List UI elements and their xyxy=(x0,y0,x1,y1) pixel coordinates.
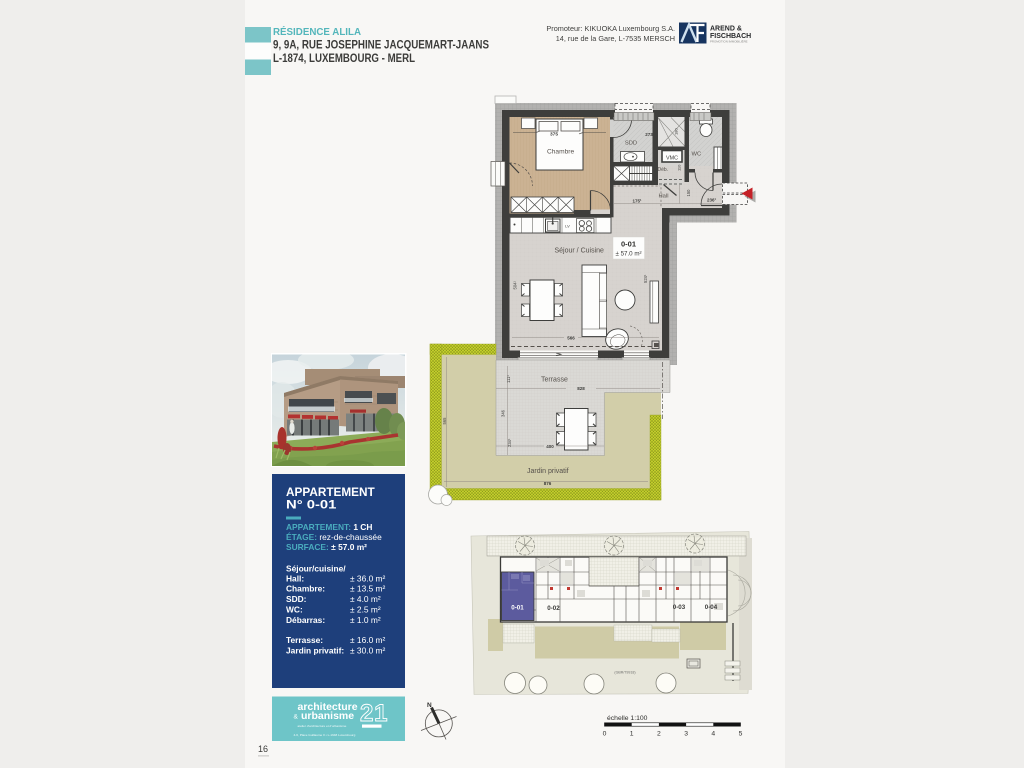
svg-text:16: 16 xyxy=(258,744,268,754)
svg-text:ÉTAGE: rez-de-chaussée: ÉTAGE: rez-de-chaussée xyxy=(286,531,382,542)
svg-text:± 57.0 m²: ± 57.0 m² xyxy=(615,251,641,258)
svg-text:21: 21 xyxy=(360,700,388,727)
svg-text:4: 4 xyxy=(711,731,715,738)
svg-text:atelier d'architecture et d'ur: atelier d'architecture et d'urbanisme xyxy=(298,724,347,728)
svg-text:WC: WC xyxy=(692,152,702,158)
svg-text:110: 110 xyxy=(677,164,682,171)
svg-text:SDD:: SDD: xyxy=(286,594,306,604)
svg-text:L-1874, LUXEMBOURG - MERL: L-1874, LUXEMBOURG - MERL xyxy=(273,53,415,65)
svg-text:Débarras:: Débarras: xyxy=(286,615,325,625)
svg-text:Jardin privatif:: Jardin privatif: xyxy=(286,646,344,656)
svg-text:(GBR/79918): (GBR/79918) xyxy=(614,671,635,675)
svg-text:234¹: 234¹ xyxy=(507,438,512,447)
svg-text:180: 180 xyxy=(674,128,679,135)
svg-text:± 36.0 m²: ± 36.0 m² xyxy=(350,574,386,584)
svg-text:Chambre: Chambre xyxy=(547,149,574,156)
svg-text:0-01: 0-01 xyxy=(621,240,636,249)
svg-text:VMC: VMC xyxy=(666,156,678,162)
svg-text:SDD: SDD xyxy=(625,141,637,147)
svg-text:RÉSIDENCE ALILA: RÉSIDENCE ALILA xyxy=(273,25,361,38)
svg-text:± 2.5 m²: ± 2.5 m² xyxy=(350,605,381,615)
svg-text:Jardin privatif: Jardin privatif xyxy=(527,468,569,475)
svg-text:Terrasse: Terrasse xyxy=(541,377,568,384)
svg-text:3: 3 xyxy=(684,731,688,738)
svg-text:Séjour/cuisine/: Séjour/cuisine/ xyxy=(286,564,346,574)
svg-text:566: 566 xyxy=(567,336,575,341)
svg-text:± 4.0 m²: ± 4.0 m² xyxy=(350,594,381,604)
svg-text:0: 0 xyxy=(603,731,607,738)
svg-text:565: 565 xyxy=(442,417,447,425)
svg-text:0-01: 0-01 xyxy=(511,605,524,612)
svg-text:WC:: WC: xyxy=(286,605,303,615)
svg-text:0-03: 0-03 xyxy=(673,604,686,611)
svg-text:SURFACE: ± 57.0 m²: SURFACE: ± 57.0 m² xyxy=(286,542,367,552)
svg-text:4-6, Place Guillaume II • L-: 4-6, Place Guillaume II • L-1648 Luxembo… xyxy=(294,733,356,737)
svg-text:828: 828 xyxy=(577,386,585,391)
svg-text:Chambre:: Chambre: xyxy=(286,584,325,594)
svg-text:175¹: 175¹ xyxy=(632,199,642,204)
svg-text:524¹: 524¹ xyxy=(643,274,648,283)
svg-text:2: 2 xyxy=(657,731,661,738)
svg-text:N: N xyxy=(427,702,432,709)
svg-text:AREND &: AREND & xyxy=(710,26,742,33)
svg-text:400: 400 xyxy=(546,444,554,449)
svg-text:± 13.5 m²: ± 13.5 m² xyxy=(350,584,386,594)
svg-text:111¹: 111¹ xyxy=(506,375,511,383)
svg-text:0-02: 0-02 xyxy=(547,605,560,612)
svg-text:APPARTEMENT: 1 CH: APPARTEMENT: 1 CH xyxy=(286,522,372,532)
svg-text:N° 0-01: N° 0-01 xyxy=(286,498,337,512)
svg-text:Hall:: Hall: xyxy=(286,574,304,584)
svg-text:14, rue de la Gare, L-7535 MER: 14, rue de la Gare, L-7535 MERSCH xyxy=(556,34,675,43)
svg-text:Séjour / Cuisine: Séjour / Cuisine xyxy=(555,248,605,255)
svg-text:346: 346 xyxy=(501,409,506,417)
svg-text:Terrasse:: Terrasse: xyxy=(286,635,323,645)
svg-text:± 30.0 m²: ± 30.0 m² xyxy=(350,646,386,656)
svg-text:Hall: Hall xyxy=(659,194,669,200)
svg-text:236¹: 236¹ xyxy=(707,198,717,203)
svg-text:± 16.0 m²: ± 16.0 m² xyxy=(350,635,386,645)
svg-text:urbanisme: urbanisme xyxy=(301,710,354,722)
svg-text:504¹: 504¹ xyxy=(513,281,518,290)
svg-text:150: 150 xyxy=(686,189,691,197)
svg-text:Déb.: Déb. xyxy=(658,167,669,173)
svg-text:échelle 1:100: échelle 1:100 xyxy=(607,715,648,722)
svg-text:876: 876 xyxy=(544,481,552,486)
svg-text:PROMOTION IMMOBILIÈRE: PROMOTION IMMOBILIÈRE xyxy=(710,39,748,44)
svg-text:LV: LV xyxy=(565,223,570,228)
svg-text:± 1.0 m²: ± 1.0 m² xyxy=(350,615,381,625)
svg-text:273: 273 xyxy=(645,132,653,137)
svg-text:375: 375 xyxy=(550,132,558,138)
svg-text:1: 1 xyxy=(630,731,634,738)
svg-text:&: & xyxy=(294,714,299,721)
svg-text:Promoteur: KIKUOKA Luxembourg: Promoteur: KIKUOKA Luxembourg S.A. xyxy=(546,24,675,33)
svg-text:9, 9A, RUE JOSEPHINE JACQUEMAR: 9, 9A, RUE JOSEPHINE JACQUEMART-JAANS xyxy=(273,40,489,52)
svg-text:0-04: 0-04 xyxy=(705,604,718,611)
svg-text:5: 5 xyxy=(739,731,743,738)
